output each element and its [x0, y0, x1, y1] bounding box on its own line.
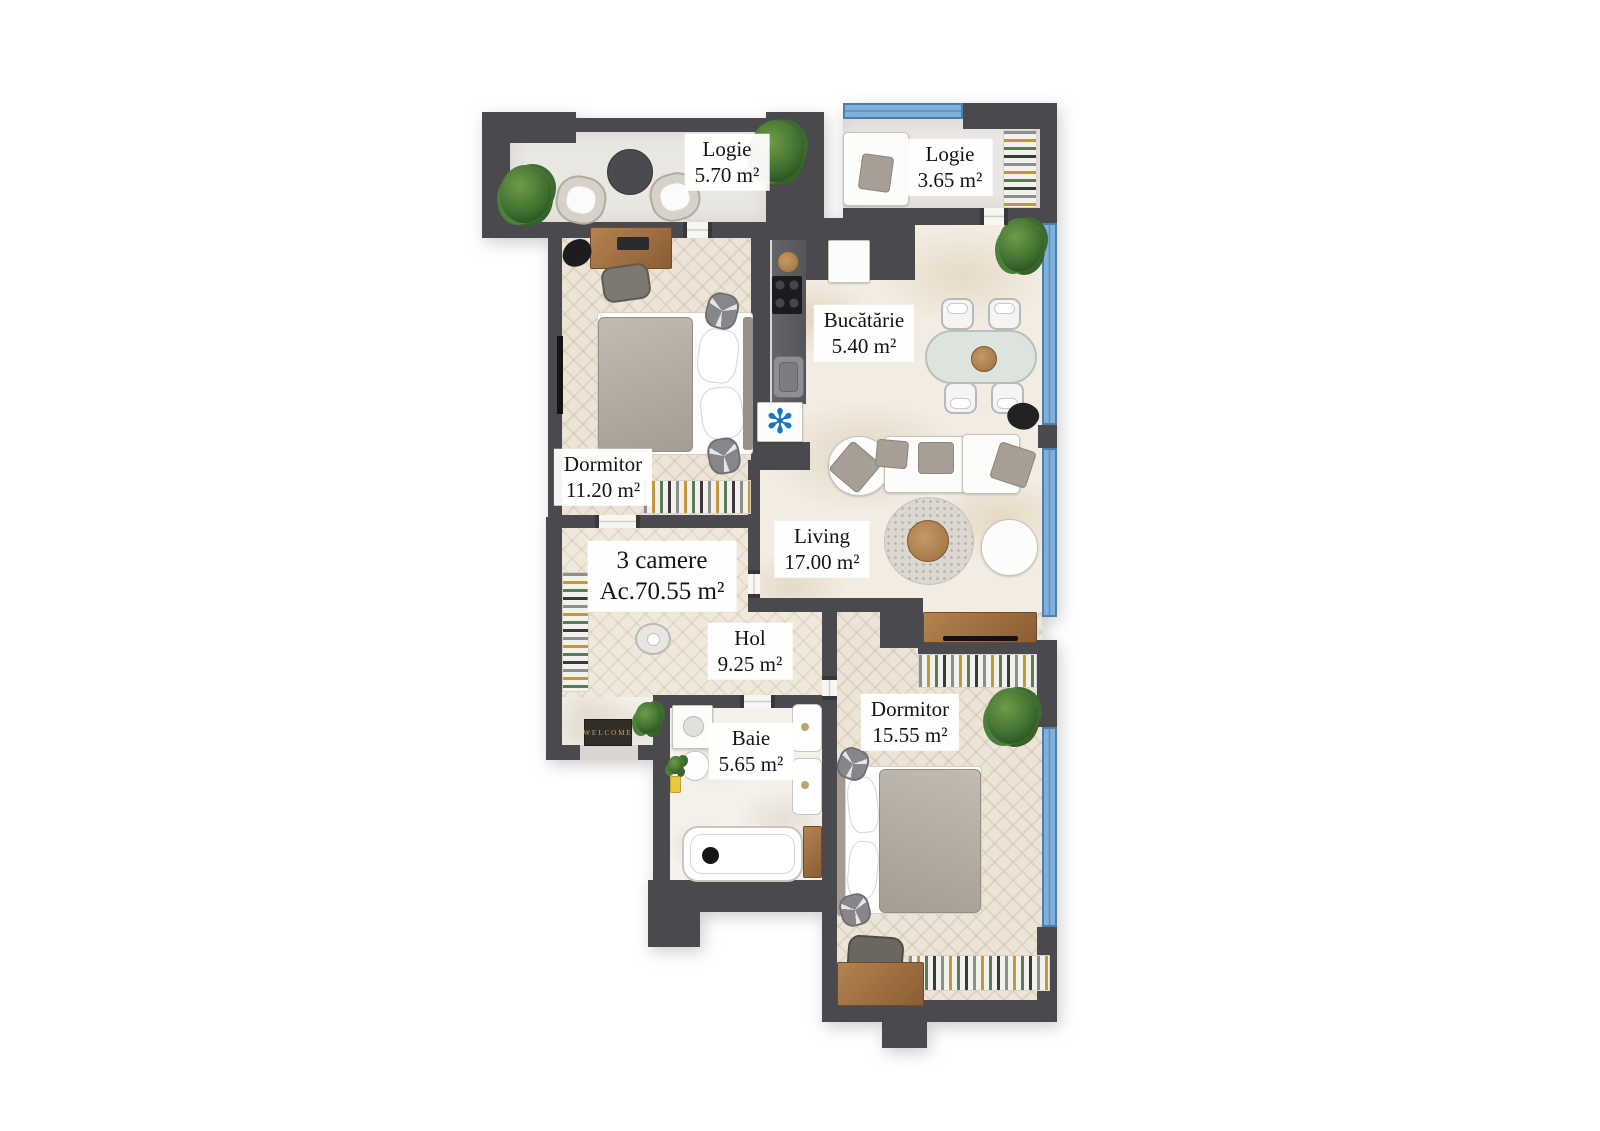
door-opening [683, 222, 712, 238]
tv [943, 636, 1018, 641]
dining-chair [988, 298, 1021, 330]
wall [712, 222, 766, 238]
ceiling-light [635, 623, 671, 655]
room-area: 9.25 m² [718, 651, 783, 677]
plan-title-line2: Ac.70.55 m² [600, 576, 725, 607]
room-label-logie-2: Logie 3.65 m² [908, 139, 993, 196]
room-name: Bucătărie [824, 307, 904, 333]
dining-chair [944, 382, 977, 414]
window-glazing [1042, 223, 1057, 425]
window-glazing [1042, 727, 1057, 927]
shoe-rack [1003, 130, 1037, 208]
room-area: 15.55 m² [871, 722, 949, 748]
kitchen-sink [773, 356, 804, 398]
bathroom-sink [792, 758, 822, 815]
room-area: 11.20 m² [564, 477, 642, 503]
fridge-spot: ✻ [757, 402, 803, 442]
duvet [879, 769, 981, 913]
washer-drum [683, 716, 704, 737]
room-label-baie: Baie 5.65 m² [709, 723, 794, 780]
cushion [918, 442, 954, 474]
door-opening [595, 515, 640, 528]
dining-chair [941, 298, 974, 330]
wardrobe-rack [562, 572, 589, 692]
bath-cabinet [803, 826, 822, 878]
room-area: 5.40 m² [824, 333, 904, 359]
wall [546, 745, 580, 760]
wall [1037, 654, 1057, 727]
room-name: Logie [918, 141, 983, 167]
cutting-board [777, 251, 799, 273]
wall [822, 700, 837, 1022]
bed [845, 766, 982, 914]
door-opening [822, 676, 837, 700]
room-label-bucatarie: Bucătărie 5.40 m² [814, 305, 914, 362]
room-area: 5.65 m² [719, 751, 784, 777]
room-name: Baie [719, 725, 784, 751]
bathtub [682, 826, 803, 882]
room-name: Dormitor [871, 696, 949, 722]
room-name: Dormitor [564, 451, 642, 477]
entry-threshold [580, 745, 638, 760]
pillow [846, 840, 881, 900]
wall [482, 112, 576, 143]
cushion [858, 153, 895, 193]
room-label-dormitor-1: Dormitor 11.20 m² [554, 449, 652, 506]
washing-machine [672, 705, 713, 749]
tv-console [923, 612, 1037, 643]
wall [1038, 425, 1057, 448]
wardrobe-rack [918, 654, 1037, 688]
apartment-plan: ✻ WELCOME [0, 0, 1600, 1131]
dining-table [925, 330, 1037, 384]
floor-plan: ✻ WELCOME [0, 0, 1600, 1131]
fridge [828, 240, 870, 283]
bath-accessory [670, 776, 681, 793]
room-label-logie-1: Logie 5.70 m² [685, 134, 770, 191]
wall [638, 745, 667, 760]
wall [648, 880, 700, 947]
door-opening [980, 208, 1008, 225]
duvet [598, 317, 693, 452]
toilet [681, 751, 709, 781]
welcome-mat-text: WELCOME [583, 729, 632, 737]
room-name: Logie [695, 136, 760, 162]
side-table [981, 519, 1038, 576]
room-area: 17.00 m² [784, 549, 859, 575]
laptop [617, 237, 649, 250]
pillow [845, 776, 881, 835]
door-opening [740, 695, 775, 708]
wall [963, 103, 1057, 129]
window-glazing [1042, 448, 1057, 617]
window-mark [557, 336, 563, 414]
door-opening [748, 570, 760, 598]
wardrobe-rack [643, 480, 751, 514]
room-area: 3.65 m² [918, 167, 983, 193]
stove [772, 276, 802, 314]
room-label-living: Living 17.00 m² [774, 521, 869, 578]
bathroom-sink [792, 704, 822, 752]
fridge-symbol: ✻ [758, 403, 802, 441]
room-name: Hol [718, 625, 783, 651]
desk [837, 962, 924, 1006]
wall [576, 118, 766, 132]
room-label-hol: Hol 9.25 m² [708, 623, 793, 680]
plan-title-line1: 3 camere [600, 545, 725, 576]
welcome-mat: WELCOME [584, 719, 632, 746]
desk [590, 227, 672, 269]
ceiling-light-center [647, 633, 660, 646]
table-centerpiece [971, 346, 997, 372]
coffee-table [907, 520, 949, 562]
pillow [694, 326, 741, 385]
wall [882, 1022, 927, 1048]
wall [548, 515, 595, 528]
wardrobe-rack [908, 955, 1050, 991]
room-label-dormitor-2: Dormitor 15.55 m² [861, 694, 959, 751]
balcony-sofa [843, 132, 909, 206]
headboard [743, 317, 753, 450]
wall [880, 612, 923, 648]
wall [640, 515, 752, 528]
bed [597, 312, 753, 455]
cushion [875, 439, 909, 470]
wall [546, 517, 562, 747]
desk-chair [600, 262, 653, 304]
room-name: Living [784, 523, 859, 549]
window-glazing [843, 103, 963, 119]
pillow [698, 385, 746, 442]
wall [822, 598, 837, 676]
room-area: 5.70 m² [695, 162, 760, 188]
patio-table [607, 149, 653, 195]
wall [1040, 129, 1057, 225]
plan-title: 3 camere Ac.70.55 m² [588, 541, 737, 612]
